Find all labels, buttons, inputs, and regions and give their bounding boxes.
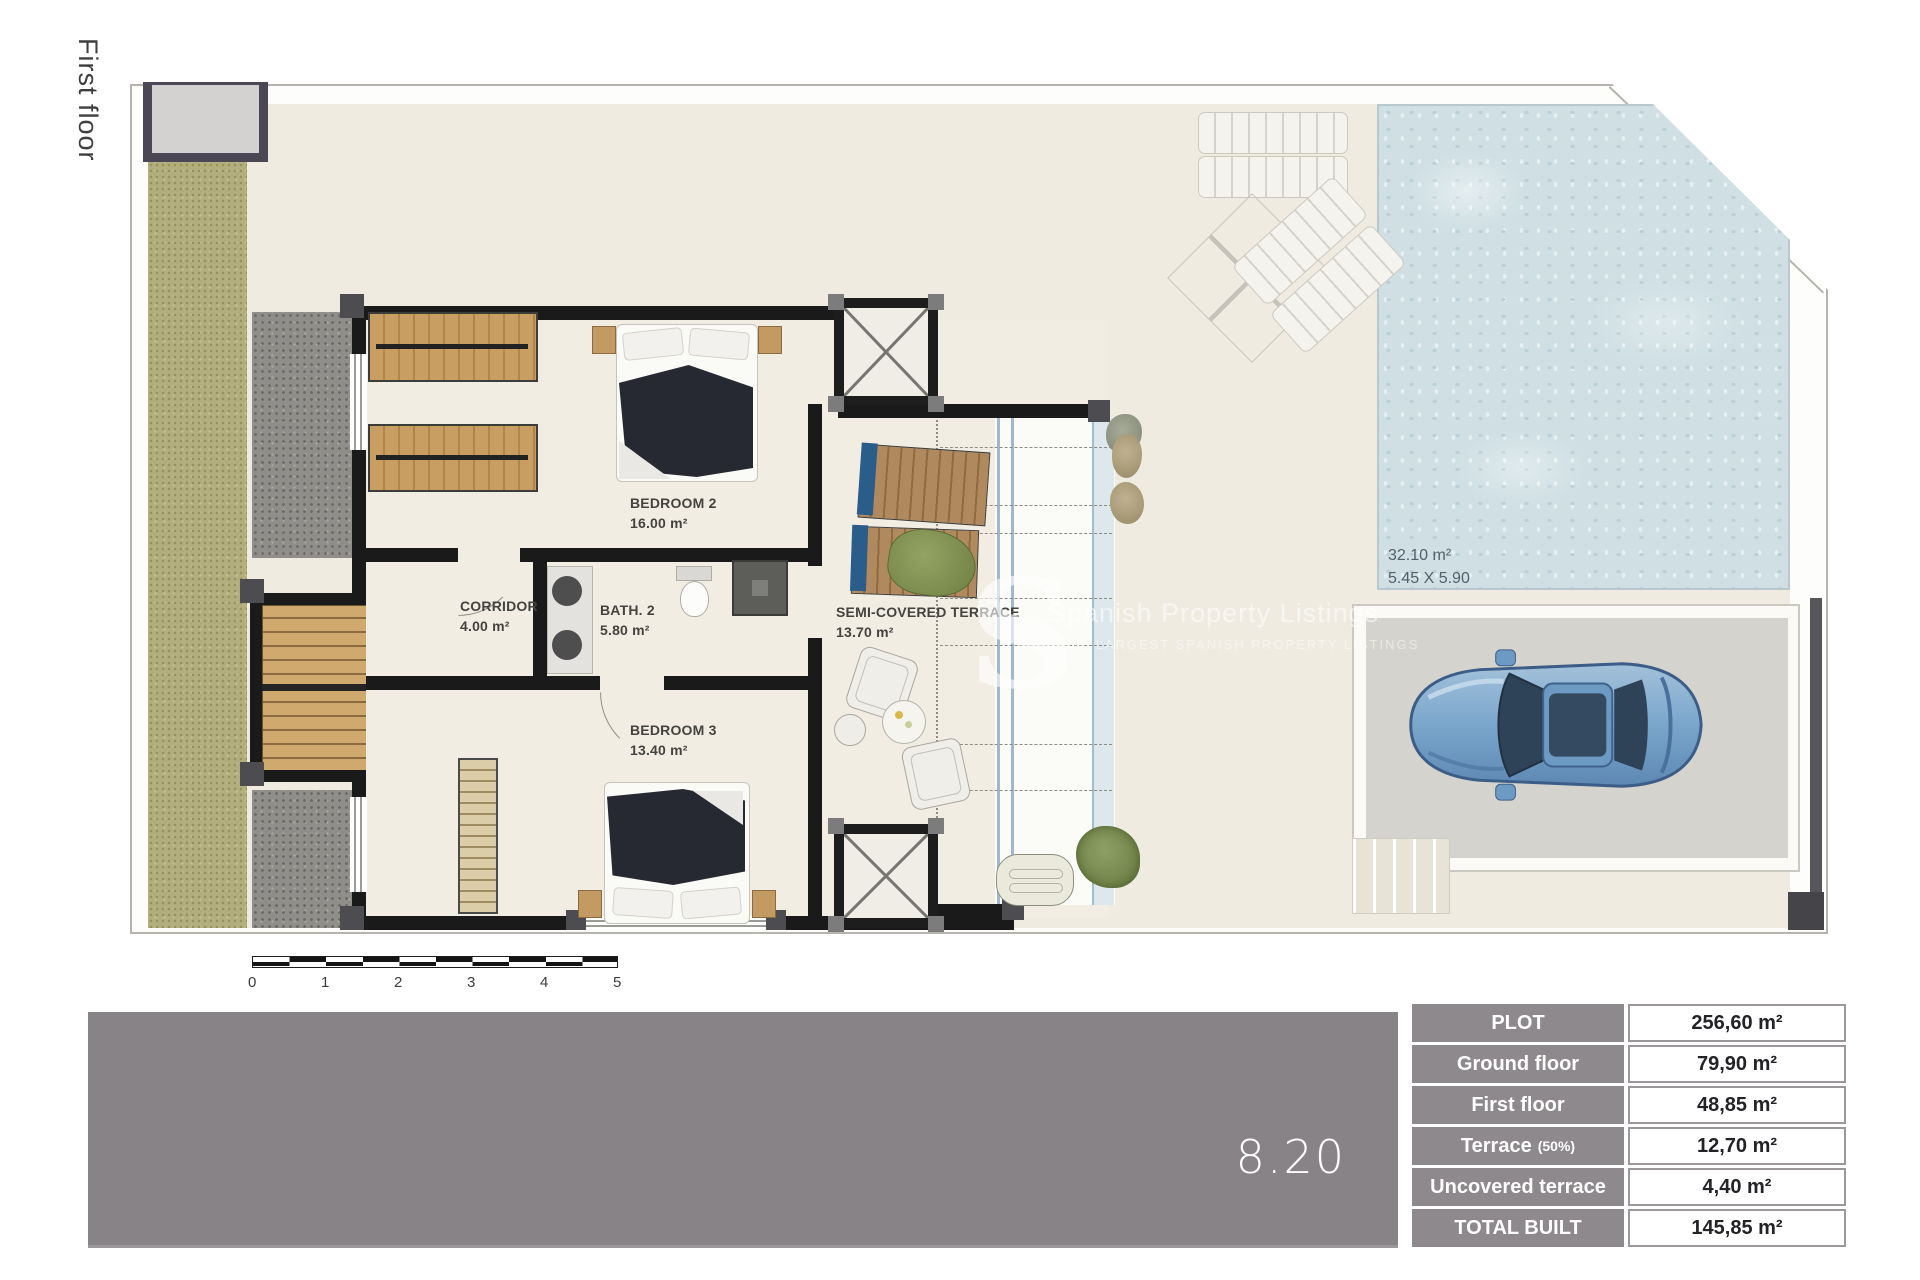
shaft-corner: [928, 396, 944, 412]
pillar: [1088, 400, 1110, 422]
nightstand: [758, 326, 782, 354]
table-row: Ground floor 79,90 m²: [1412, 1045, 1846, 1083]
garden-bench: [996, 854, 1074, 906]
flower-dot: [905, 721, 912, 728]
room-area: 13.40 m²: [630, 740, 717, 760]
scale-tick: 0: [248, 974, 256, 991]
gravel-patch-top: [252, 312, 352, 558]
washbasin: [552, 576, 582, 606]
room-area: 16.00 m²: [630, 513, 717, 533]
shaft-corner: [828, 916, 844, 932]
scale-bar: [252, 956, 618, 968]
pillow: [612, 887, 674, 919]
pool-dimensions: 5.45 X 5.90: [1388, 567, 1470, 590]
floor-plan-page: { "page": { "title_vertical": "First flo…: [0, 0, 1920, 1280]
pool-label: 32.10 m² 5.45 X 5.90: [1388, 544, 1470, 590]
table-row-label-text: Terrace: [1461, 1135, 1532, 1158]
pillow: [680, 886, 742, 919]
table-row: Uncovered terrace 4,40 m²: [1412, 1168, 1846, 1206]
table-row-label-suffix: (50%): [1538, 1138, 1575, 1154]
shaft-corner: [828, 294, 844, 310]
pool-area: 32.10 m²: [1388, 544, 1470, 567]
shaft-lower: [834, 824, 938, 928]
nightstand: [578, 890, 602, 918]
table-row: TOTAL BUILT 145,85 m²: [1412, 1209, 1846, 1247]
car: [1392, 644, 1710, 806]
room-area: 5.80 m²: [600, 620, 655, 640]
lawn-strip: [148, 162, 247, 928]
shower-drain: [752, 580, 768, 596]
watermark-initial: S: [968, 560, 1076, 710]
table-row-value: 145,85 m²: [1628, 1209, 1846, 1247]
wall-bedroom2-south: [366, 548, 458, 562]
linen-ladder: [458, 758, 498, 914]
table-row-value: 12,70 m²: [1628, 1127, 1846, 1165]
room-label-bedroom3: BEDROOM 3 13.40 m²: [630, 720, 717, 761]
areas-table: PLOT 256,60 m² Ground floor 79,90 m² Fir…: [1412, 1004, 1846, 1247]
wardrobe-rail: [376, 344, 528, 349]
construction-line: [940, 744, 1112, 745]
nightstand: [592, 326, 616, 354]
table-row-label: First floor: [1412, 1086, 1624, 1124]
room-name: BEDROOM 3: [630, 720, 717, 740]
toilet-tank: [676, 566, 712, 581]
watermark-line2: THE LARGEST SPANISH PROPERTY LISTINGS: [1058, 637, 1419, 652]
page-title-vertical: First floor: [72, 38, 103, 162]
wardrobe: [368, 312, 538, 382]
bed-bedroom2: [616, 324, 758, 482]
wall-terrace-left: [808, 404, 822, 566]
stair-wall-left: [250, 593, 262, 782]
scale-bar-lower-row: [253, 962, 616, 967]
armchair: [900, 736, 972, 811]
pillar: [340, 906, 364, 930]
pillow: [622, 327, 685, 361]
shaft-corner: [928, 916, 944, 932]
window-left-upper: [350, 354, 367, 450]
pouf: [834, 714, 866, 746]
exterior-step-grid: [1352, 838, 1450, 914]
wall-bedroom3-north: [664, 676, 822, 690]
room-label-corridor: CORRIDOR 4.00 m²: [460, 596, 538, 637]
scale-tick: 2: [394, 974, 402, 991]
wardrobe-rail: [376, 455, 528, 460]
bench-cushion-line: [1009, 883, 1063, 893]
wall-bottom: [352, 916, 584, 930]
shaft-corner: [928, 818, 944, 834]
watermark-line1: Spanish Property Listings: [1048, 598, 1379, 629]
room-name: BATH. 2: [600, 600, 655, 620]
wardrobe: [368, 424, 538, 492]
shaft-x-icon: [844, 308, 928, 396]
table-row-value: 79,90 m²: [1628, 1045, 1846, 1083]
wall-bedroom3-north: [366, 676, 600, 690]
shaft-upper: [834, 298, 938, 406]
shrub: [1110, 482, 1144, 524]
gravel-patch-bottom: [252, 790, 352, 928]
wall-terrace-top: [838, 404, 1100, 418]
plot-corner-block: [1788, 892, 1824, 930]
washbasin: [552, 630, 582, 660]
table-row-value: 4,40 m²: [1628, 1168, 1846, 1206]
stair-pillar: [240, 762, 264, 786]
footer-bar: 8.20: [88, 1012, 1398, 1248]
scale-tick: 4: [540, 974, 548, 991]
shaft-corner: [828, 396, 844, 412]
shaft-x-icon: [844, 834, 928, 918]
plot-right-edge: [1810, 598, 1822, 930]
room-area: 4.00 m²: [460, 616, 538, 636]
nightstand: [752, 890, 776, 918]
sun-lounger-pool: [1198, 112, 1348, 154]
scale-tick: 1: [321, 974, 329, 991]
table-row-value: 256,60 m²: [1628, 1004, 1846, 1042]
scale-tick-labels: 0 1 2 3 4 5: [252, 974, 618, 994]
table-row: First floor 48,85 m²: [1412, 1086, 1846, 1124]
table-row: PLOT 256,60 m²: [1412, 1004, 1846, 1042]
construction-line: [940, 447, 1112, 448]
toilet-bowl: [680, 581, 709, 617]
room-label-bedroom2: BEDROOM 2 16.00 m²: [630, 493, 717, 534]
table-row-label: Uncovered terrace: [1412, 1168, 1624, 1206]
pillow: [688, 327, 750, 360]
side-table: [882, 700, 926, 744]
sun-lounger-terrace: [858, 444, 991, 527]
table-row-label: Terrace (50%): [1412, 1127, 1624, 1165]
stair-pillar: [240, 579, 264, 603]
shaft-corner: [828, 818, 844, 834]
wall-left: [352, 450, 366, 600]
plan-number: 8.20: [1236, 1130, 1346, 1184]
room-label-bath2: BATH. 2 5.80 m²: [600, 600, 655, 641]
table-row-label: TOTAL BUILT: [1412, 1209, 1624, 1247]
room-name: BEDROOM 2: [630, 493, 717, 513]
room-name: CORRIDOR: [460, 596, 538, 616]
table-row-value: 48,85 m²: [1628, 1086, 1846, 1124]
table-row-label: PLOT: [1412, 1004, 1624, 1042]
pillar: [340, 294, 364, 318]
table-row: Terrace (50%) 12,70 m²: [1412, 1127, 1846, 1165]
lounger-headrest: [850, 525, 868, 592]
scale-tick: 5: [613, 974, 621, 991]
scale-tick: 3: [467, 974, 475, 991]
window-left-lower: [350, 797, 367, 892]
shaft-corner: [928, 294, 944, 310]
shower-tray: [732, 560, 788, 616]
flower-dot: [895, 711, 903, 719]
wall-left: [352, 775, 366, 797]
table-row-label: Ground floor: [1412, 1045, 1624, 1083]
bench-cushion-line: [1009, 869, 1063, 879]
bed-bedroom3: [604, 782, 750, 924]
entry-canopy: [143, 82, 268, 162]
